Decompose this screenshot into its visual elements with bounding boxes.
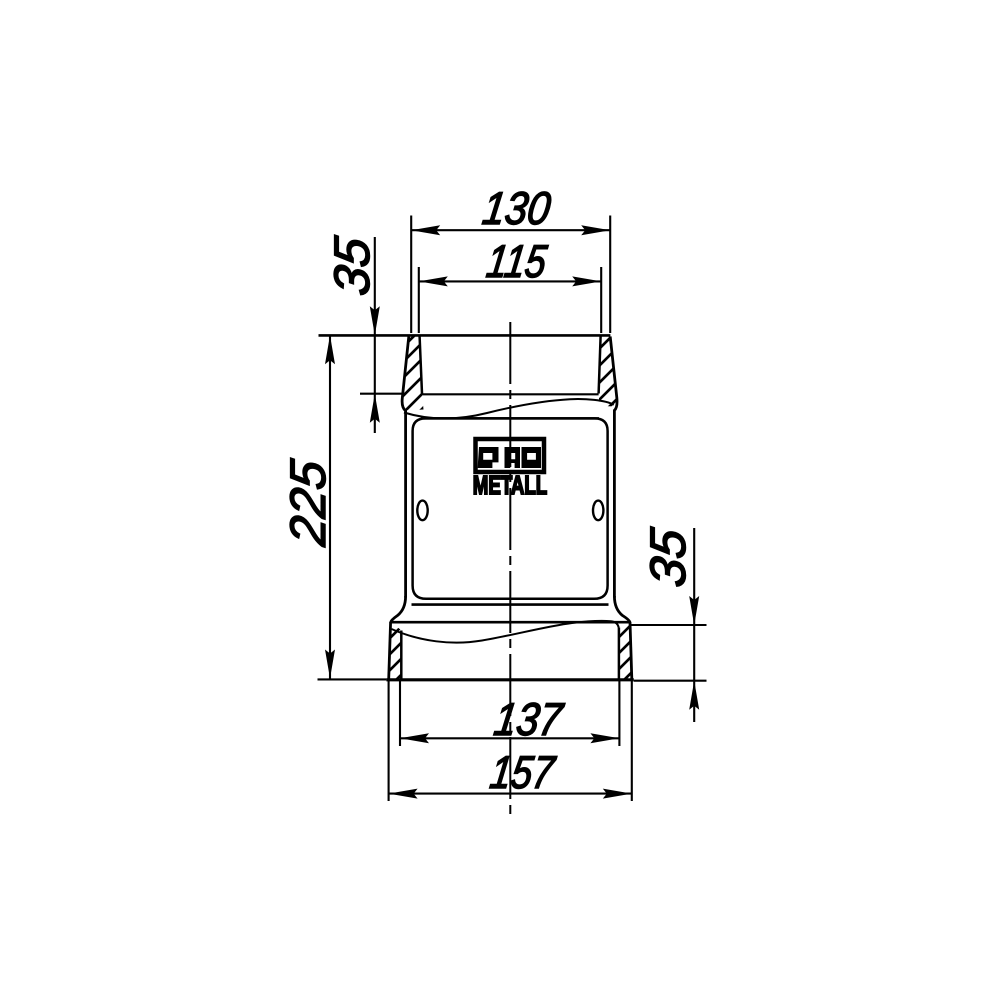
svg-text:225: 225 (280, 456, 336, 550)
svg-text:137: 137 (491, 693, 567, 745)
svg-text:115: 115 (484, 235, 551, 287)
svg-text:157: 157 (487, 746, 559, 798)
svg-text:35: 35 (640, 524, 696, 590)
svg-text:130: 130 (480, 182, 555, 234)
svg-text:METALL: METALL (473, 470, 548, 500)
svg-text:35: 35 (324, 233, 380, 299)
